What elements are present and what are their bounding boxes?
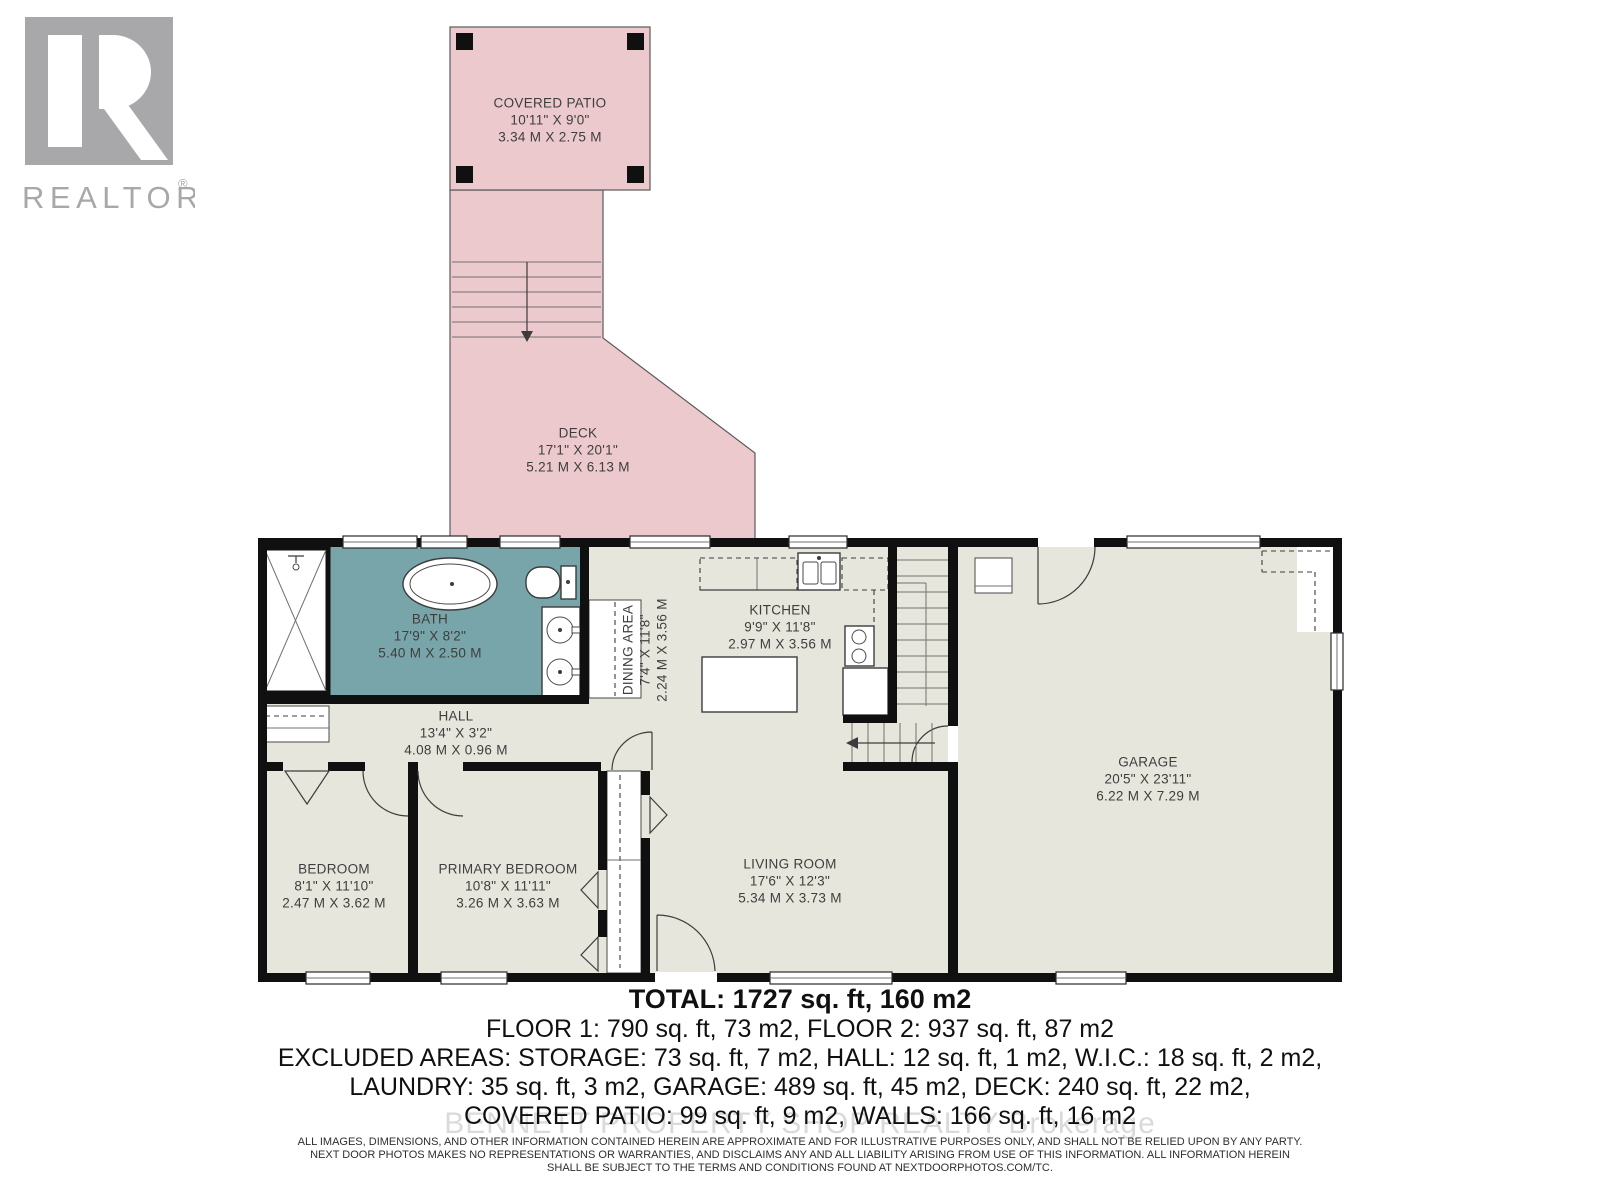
room-dim-imperial: 17'9" X 8'2": [378, 628, 482, 645]
sink-faucet: [572, 669, 580, 675]
room-label-garage: GARAGE 20'5" X 23'11" 6.22 M X 7.29 M: [1096, 754, 1200, 805]
room-dim-metric: 2.97 M X 3.56 M: [728, 636, 832, 653]
excluded-areas-line2: LAUNDRY: 35 sq. ft, 3 m2, GARAGE: 489 sq…: [0, 1073, 1600, 1102]
closet-strip: [607, 771, 641, 973]
room-name: COVERED PATIO: [494, 95, 607, 112]
shower-head-icon-dot: [293, 564, 299, 570]
room-name: GARAGE: [1096, 754, 1200, 771]
stair-door-opening: [948, 726, 958, 762]
room-name: BATH: [378, 611, 482, 628]
floors-area: FLOOR 1: 790 sq. ft, 73 m2, FLOOR 2: 937…: [0, 1015, 1600, 1044]
bathtub-drain: [450, 582, 454, 586]
room-label-living-room: LIVING ROOM 17'6" X 12'3" 5.34 M X 3.73 …: [738, 856, 842, 907]
room-label-bath: BATH 17'9" X 8'2" 5.40 M X 2.50 M: [378, 611, 482, 662]
room-label-deck: DECK 17'1" X 20'1" 5.21 M X 6.13 M: [526, 425, 630, 476]
stove-burner: [852, 630, 866, 644]
room-dim-imperial: 17'1" X 20'1": [526, 442, 630, 459]
front-door-opening: [655, 972, 717, 983]
sink-faucet: [572, 627, 580, 633]
room-label-hall: HALL 13'4" X 3'2" 4.08 M X 0.96 M: [404, 708, 508, 759]
stove-burner: [852, 649, 866, 663]
room-label-kitchen: KITCHEN 9'9" X 11'8" 2.97 M X 3.56 M: [728, 602, 832, 653]
room-label-dining: DINING AREA 7'4" X 11'8" 2.24 M X 3.56 M: [620, 598, 671, 702]
kitchen-island: [702, 657, 797, 712]
room-dim-metric: 3.34 M X 2.75 M: [494, 129, 607, 146]
room-dim-imperial: 13'4" X 3'2": [404, 725, 508, 742]
room-name: BEDROOM: [282, 861, 386, 878]
room-name: DINING AREA: [620, 598, 637, 702]
room-dim-imperial: 9'9" X 11'8": [728, 619, 832, 636]
room-name: LIVING ROOM: [738, 856, 842, 873]
room-label-bedroom: BEDROOM 8'1" X 11'10" 2.47 M X 3.62 M: [282, 861, 386, 912]
disclaimer-line: SHALL BE SUBJECT TO THE TERMS AND CONDIT…: [0, 1162, 1600, 1175]
room-dim-metric: 6.22 M X 7.29 M: [1096, 788, 1200, 805]
toilet-icon: [526, 567, 560, 598]
hall-closet: [262, 706, 329, 742]
excluded-areas-line3: COVERED PATIO: 99 sq. ft, 9 m2, WALLS: 1…: [0, 1102, 1600, 1131]
room-label-covered-patio: COVERED PATIO 10'11" X 9'0" 3.34 M X 2.7…: [494, 95, 607, 146]
room-label-primary-bedroom: PRIMARY BEDROOM 10'8" X 11'11" 3.26 M X …: [438, 861, 577, 912]
disclaimer: ALL IMAGES, DIMENSIONS, AND OTHER INFORM…: [0, 1136, 1600, 1175]
room-dim-metric: 3.26 M X 3.63 M: [438, 895, 577, 912]
room-dim-imperial: 17'6" X 12'3": [738, 873, 842, 890]
room-dim-imperial: 10'8" X 11'11": [438, 878, 577, 895]
room-dim-metric: 5.21 M X 6.13 M: [526, 459, 630, 476]
room-dim-imperial: 8'1" X 11'10": [282, 878, 386, 895]
garage-furnace: [975, 558, 1012, 593]
room-dim-metric: 5.40 M X 2.50 M: [378, 645, 482, 662]
room-dim-metric: 2.24 M X 3.56 M: [654, 598, 671, 702]
kitchen-counter: [843, 668, 888, 715]
room-name: PRIMARY BEDROOM: [438, 861, 577, 878]
garage-door-opening: [1038, 538, 1094, 547]
floor-plan-page: REALTOR ®: [0, 0, 1600, 1200]
kitchen-faucet: [817, 556, 821, 560]
excluded-areas-line1: EXCLUDED AREAS: STORAGE: 73 sq. ft, 7 m2…: [0, 1044, 1600, 1073]
room-dim-metric: 4.08 M X 0.96 M: [404, 742, 508, 759]
room-dim-imperial: 10'11" X 9'0": [494, 112, 607, 129]
disclaimer-line: ALL IMAGES, DIMENSIONS, AND OTHER INFORM…: [0, 1136, 1600, 1149]
area-summary: TOTAL: 1727 sq. ft, 160 m2 FLOOR 1: 790 …: [0, 984, 1600, 1175]
total-area: TOTAL: 1727 sq. ft, 160 m2: [0, 984, 1600, 1015]
room-dim-imperial: 20'5" X 23'11": [1096, 771, 1200, 788]
room-dim-imperial: 7'4" X 11'8": [637, 598, 654, 702]
room-dim-metric: 2.47 M X 3.62 M: [282, 895, 386, 912]
room-name: DECK: [526, 425, 630, 442]
room-name: KITCHEN: [728, 602, 832, 619]
deck-area: [450, 190, 755, 540]
disclaimer-line: NEXT DOOR PHOTOS MAKES NO REPRESENTATION…: [0, 1149, 1600, 1162]
room-name: HALL: [404, 708, 508, 725]
toilet-flush: [566, 580, 570, 584]
room-dim-metric: 5.34 M X 3.73 M: [738, 890, 842, 907]
